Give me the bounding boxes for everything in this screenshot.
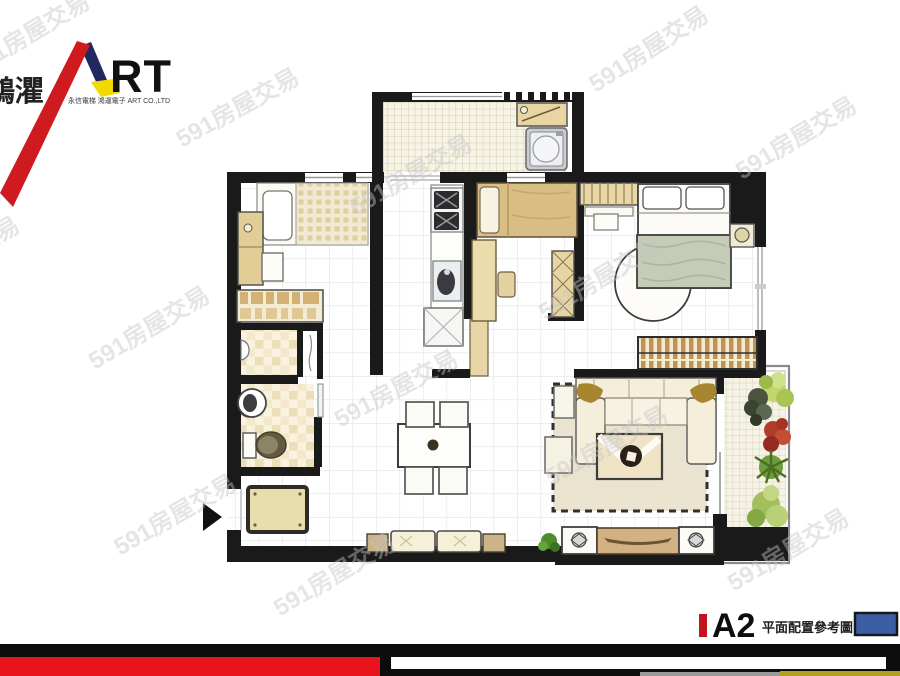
svg-text:A2: A2 — [712, 607, 755, 645]
svg-text:鴻灈: 鴻灈 — [0, 75, 44, 108]
svg-text:永信電梯 鴻運電子 ART CO.,LTD: 永信電梯 鴻運電子 ART CO.,LTD — [68, 96, 170, 105]
svg-text:平面配置參考圖: 平面配置參考圖 — [762, 620, 853, 635]
svg-text:RT: RT — [110, 51, 172, 102]
